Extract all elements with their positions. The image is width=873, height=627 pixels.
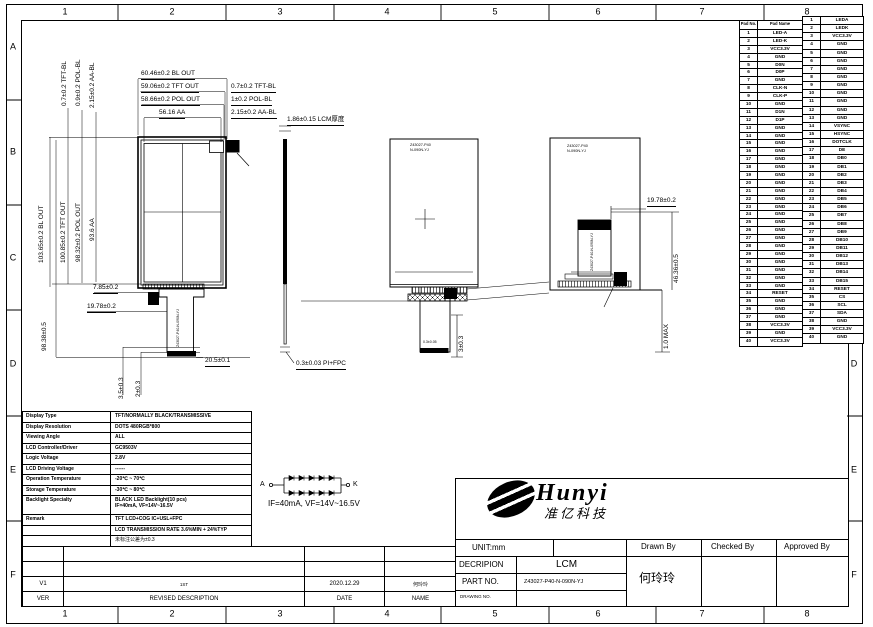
spec-value: -30℃ ~ 80℃ — [111, 486, 251, 496]
pin-name: VCC3.3V — [758, 46, 802, 53]
led-cathode-label: K — [353, 481, 358, 488]
approved-by-header: Approved By — [784, 543, 830, 551]
side-view — [279, 126, 294, 363]
pin-row: 5 GND — [803, 50, 863, 58]
pin-number: 34 — [740, 290, 758, 297]
dim-tail-offset-back: 19.78±0.2 — [647, 198, 676, 207]
pin-name: DB6 — [821, 204, 863, 211]
led-circuit-diagram — [269, 476, 349, 496]
pin-number: 14 — [740, 133, 758, 140]
drawn-by-header: Drawn By — [641, 543, 676, 551]
pin-number: 24 — [740, 211, 758, 218]
pin-name: DB8 — [821, 221, 863, 228]
pin-number: 1 — [803, 17, 821, 24]
pin-name: GND — [758, 188, 802, 195]
pin-name: GND — [821, 318, 863, 325]
pin-name: GND — [758, 330, 802, 337]
pin-row: 34 RESET — [803, 286, 863, 294]
pin-name: GND — [758, 196, 802, 203]
pin-row: 28 GND — [740, 243, 802, 251]
pin-name: GND — [821, 334, 863, 342]
spec-label: Storage Temperature — [23, 486, 111, 496]
pin-row: 25 DB7 — [803, 212, 863, 220]
dim-t-3: 3±0.3 — [459, 336, 466, 352]
pin-name: DB5 — [821, 196, 863, 203]
pin-row: 15 HSYNC — [803, 131, 863, 139]
spec-row: Display Type TFT/NORMALLY BLACK/TRANSMIS… — [23, 412, 251, 423]
pin-name: GND — [758, 251, 802, 258]
pin-number: 6 — [803, 58, 821, 65]
pin-name: GND — [758, 298, 802, 305]
spec-label: Viewing Angle — [23, 433, 111, 443]
dim-lcm-thickness: 1.86±0.15 LCM厚度 — [287, 117, 344, 126]
pin-number: 37 — [740, 314, 758, 321]
spec-value: BLACK LED Backlight(10 pcs) IF=40mA, VF=… — [111, 496, 251, 514]
spec-table: Display Type TFT/NORMALLY BLACK/TRANSMIS… — [22, 411, 252, 550]
pin-number: 15 — [803, 131, 821, 138]
dim-gap-pol-top: 0.9±0.2 POL-BL — [76, 59, 83, 106]
pin-row: 39 GND — [740, 330, 802, 338]
spec-label: Logic Voltage — [23, 454, 111, 464]
pin-number: 23 — [740, 204, 758, 211]
pin-number: 13 — [803, 115, 821, 122]
pin-row: 8 GND — [803, 74, 863, 82]
pin-name: GND — [758, 180, 802, 187]
pin-number: 11 — [803, 98, 821, 105]
spec-label: Backlight Specialty — [23, 496, 111, 514]
pin-name: GND — [821, 41, 863, 48]
revision-empty-row — [23, 547, 456, 562]
pin-number: 22 — [740, 196, 758, 203]
pin-name: LEDA — [821, 17, 863, 24]
pin-name: VSYNC — [821, 123, 863, 130]
pin-name: LED-A — [758, 30, 802, 37]
pin-row: 35 CS — [803, 294, 863, 302]
revision-name: 何玲玲 — [385, 577, 456, 591]
revision-desc-header: REVISED DESCRIPTION — [64, 592, 305, 606]
pin-row: 40 VCC3.3V — [740, 338, 802, 346]
pin-name: GND — [758, 133, 802, 140]
pin-row: 36 SCL — [803, 302, 863, 310]
pin-number: 4 — [740, 54, 758, 61]
drawing-no-label: DRAWING NO. — [460, 595, 491, 600]
pin-name: GND — [758, 77, 802, 84]
dim-h-bl: 103.65±0.2 BL OUT — [39, 205, 46, 263]
pin-number: 14 — [803, 123, 821, 130]
pin-name: GND — [758, 156, 802, 163]
spec-value: ALL — [111, 433, 251, 443]
pin-number: 7 — [803, 66, 821, 73]
pin-row: 10 GND — [803, 90, 863, 98]
pin-name: GND — [821, 50, 863, 57]
pin-name: DOTCLK — [821, 139, 863, 146]
company-logo-mark — [481, 473, 541, 524]
pin-name: GND — [821, 74, 863, 81]
company-logo-chinese: 准亿科技 — [544, 507, 608, 520]
spec-row: Remark TFT LCD+COG IC+USL+FPC — [23, 515, 251, 526]
dim-tail-offset: 19.78±0.2 — [87, 304, 116, 313]
pin-row: 29 GND — [740, 251, 802, 259]
pin-number: 36 — [803, 302, 821, 309]
pin-number: 25 — [740, 219, 758, 226]
spec-label: LCD Driving Voltage — [23, 465, 111, 475]
pin-number: 11 — [740, 109, 758, 116]
pin-number: 35 — [740, 298, 758, 305]
pin-name: DB4 — [821, 188, 863, 195]
pin-row: 35 GND — [740, 298, 802, 306]
spec-label: LCD Controller/Driver — [23, 444, 111, 454]
pin-row: 18 DB0 — [803, 155, 863, 163]
pin-number: 15 — [740, 140, 758, 147]
pin-number: 37 — [803, 310, 821, 317]
pin-number: 16 — [740, 148, 758, 155]
pin-number: 7 — [740, 77, 758, 84]
pin-name: CS — [821, 294, 863, 301]
led-anode-label: A — [260, 481, 265, 488]
pin-number: 26 — [803, 221, 821, 228]
pin-name: VCC3.3V — [821, 326, 863, 333]
pin-name: GND — [821, 115, 863, 122]
spec-row: Backlight Specialty BLACK LED Backlight(… — [23, 496, 251, 515]
pin-name: VCC3.3V — [758, 322, 802, 329]
pin-row: 7 GND — [803, 66, 863, 74]
pin-row: 38 GND — [803, 318, 863, 326]
pin-number: 19 — [740, 172, 758, 179]
pin-row: 37 GND — [740, 314, 802, 322]
pin-row: 11 D1N — [740, 109, 802, 117]
pin-number: 33 — [803, 278, 821, 285]
pin-row: 21 GND — [740, 188, 802, 196]
pin-row: 23 GND — [740, 204, 802, 212]
pin-name: DB9 — [821, 229, 863, 236]
pin-name: GND — [758, 148, 802, 155]
pin-row: 1 LED-A — [740, 30, 802, 38]
pin-name: DB3 — [821, 180, 863, 187]
pin-number: 5 — [803, 50, 821, 57]
pin-row: 3 VCC3.3V — [740, 46, 802, 54]
pin-row: 17 GND — [740, 156, 802, 164]
pin-number: 28 — [803, 237, 821, 244]
pin-row: 16 GND — [740, 148, 802, 156]
pin-number: 6 — [740, 69, 758, 76]
checked-by-header: Checked By — [711, 543, 754, 551]
pin-name: GND — [758, 164, 802, 171]
dim-h-tft: 100.85±0.2 TFT OUT — [61, 202, 68, 264]
pin-name: DB2 — [821, 172, 863, 179]
pin-name: GND — [758, 125, 802, 132]
pin-no-header: Pad No. — [740, 21, 758, 29]
pin-name: DB10 — [821, 237, 863, 244]
title-block: Hunyi 准亿科技 UNIT:mm Drawn By Checked By A… — [455, 478, 849, 607]
decription-label: DECRIPION — [459, 561, 503, 569]
pin-row: 14 GND — [740, 133, 802, 141]
back-view — [301, 139, 549, 357]
pin-number: 39 — [740, 330, 758, 337]
pin-number: 2 — [740, 38, 758, 45]
pin-row: 31 GND — [740, 267, 802, 275]
pin-name: DE — [821, 147, 863, 154]
spec-value: DOTS 480RGB*800 — [111, 423, 251, 433]
pin-number: 38 — [803, 318, 821, 325]
pin-number: 30 — [740, 259, 758, 266]
pin-name-header: Pad Name — [758, 21, 802, 29]
pin-name: GND — [821, 58, 863, 65]
panel-print-label: Z43027-P40 N-090N-YJ — [567, 144, 588, 155]
pin-row: 17 DE — [803, 147, 863, 155]
pin-number: 8 — [803, 74, 821, 81]
pin-number: 29 — [803, 245, 821, 252]
pin-number: 29 — [740, 251, 758, 258]
dim-w-tft: 59.06±0.2 TFT OUT — [141, 84, 199, 93]
pin-number: 21 — [803, 180, 821, 187]
spec-value: TFT LCD+COG IC+USL+FPC — [111, 515, 251, 525]
pin-number: 40 — [803, 334, 821, 342]
pin-row: 4 GND — [803, 41, 863, 49]
pin-row: 22 DB4 — [803, 188, 863, 196]
revision-entry-row: V1 1ST 2020.12.29 何玲玲 — [23, 577, 456, 592]
pin-number: 40 — [740, 338, 758, 346]
pin-name: D1P — [758, 117, 802, 124]
company-logo-text: Hunyi — [536, 481, 609, 505]
pin-number: 36 — [740, 306, 758, 313]
pin-name: SDA — [821, 310, 863, 317]
pin-number: 13 — [740, 125, 758, 132]
pin-number: 25 — [803, 212, 821, 219]
pin-row: 38 VCC3.3V — [740, 322, 802, 330]
pin-name: GND — [758, 219, 802, 226]
pin-row: 8 CLK-N — [740, 85, 802, 93]
pin-row: 13 GND — [803, 115, 863, 123]
revision-header-row: VER REVISED DESCRIPTION DATE NAME — [23, 592, 456, 606]
pin-number: 5 — [740, 62, 758, 69]
pin-row: 6 D0P — [740, 69, 802, 77]
pin-number: 35 — [803, 294, 821, 301]
dim-w-pol: 58.66±0.2 POL OUT — [141, 97, 200, 106]
revision-ver-header: VER — [23, 592, 64, 606]
pin-number: 9 — [740, 93, 758, 100]
pin-row: 28 DB10 — [803, 237, 863, 245]
front-view — [138, 137, 249, 357]
pin-name: HSYNC — [821, 131, 863, 138]
fpc-print-vertical: Z43027-P40-N-090N-YJ — [177, 309, 181, 347]
pin-row: 18 GND — [740, 164, 802, 172]
led-spec-text: IF=40mA, VF=14V~16.5V — [268, 500, 360, 508]
pin-number: 1 — [740, 30, 758, 37]
pin-number: 9 — [803, 82, 821, 89]
panel-print-line2: N-090N-YJ — [567, 149, 588, 154]
pin-name: DB7 — [821, 212, 863, 219]
dim-tail-tolerance: 0.3±0.05 — [423, 341, 437, 345]
pin-name: DB0 — [821, 155, 863, 162]
pin-number: 12 — [740, 117, 758, 124]
drawing-sheet: 1 2 3 4 5 6 7 8 1 2 3 4 5 6 7 8 A B C D … — [0, 0, 873, 627]
pin-name: DB11 — [821, 245, 863, 252]
pin-row: 27 DB9 — [803, 229, 863, 237]
pin-number: 4 — [803, 41, 821, 48]
spec-value: ------ — [111, 465, 251, 475]
revision-ver: V1 — [23, 577, 64, 591]
decription-value: LCM — [556, 560, 577, 570]
pin-row: 30 DB12 — [803, 253, 863, 261]
spec-value: 2.8V — [111, 454, 251, 464]
pin-row: 19 DB1 — [803, 164, 863, 172]
pin-row: 16 DOTCLK — [803, 139, 863, 147]
pin-row: 14 VSYNC — [803, 123, 863, 131]
pin-name: GND — [758, 283, 802, 290]
pin-number: 32 — [740, 275, 758, 282]
pin-row: 12 D1P — [740, 117, 802, 125]
spec-label: Remark — [23, 515, 111, 525]
pin-number: 18 — [740, 164, 758, 171]
dim-gap-tft-top: 0.7±0.2 TFT-BL — [62, 61, 69, 106]
panel-print-line2: N-090N-YJ — [410, 148, 431, 153]
pin-number: 31 — [740, 267, 758, 274]
pin-number: 8 — [740, 85, 758, 92]
spec-row: LCD Controller/Driver GC9503V — [23, 444, 251, 455]
dim-h-pol: 98.32±0.2 POL OUT — [76, 203, 83, 262]
pin-number: 12 — [803, 107, 821, 114]
pin-name: DB12 — [821, 253, 863, 260]
spec-value: -20℃ ~ 70℃ — [111, 475, 251, 485]
dim-h-module: 98.38±0.5 — [42, 322, 49, 351]
pin-number: 27 — [803, 229, 821, 236]
spec-row: Viewing Angle ALL — [23, 433, 251, 444]
pin-row: 29 DB11 — [803, 245, 863, 253]
spec-row: LCD Driving Voltage ------ — [23, 465, 251, 476]
pin-name: GND — [821, 98, 863, 105]
pin-name: GND — [758, 204, 802, 211]
spec-label: Display Resolution — [23, 423, 111, 433]
pin-name: GND — [758, 101, 802, 108]
pin-row: 37 SDA — [803, 310, 863, 318]
dim-t-35: 3.5±0.3 — [119, 377, 126, 399]
pin-table-left: Pad No. Pad Name 1 LED-A 2 LED-K 3 VCC3.… — [739, 20, 803, 347]
pin-row: 31 DB13 — [803, 261, 863, 269]
pin-name: LED-K — [758, 38, 802, 45]
pin-number: 38 — [740, 322, 758, 329]
spec-row: Logic Voltage 2.8V — [23, 454, 251, 465]
pin-rows: 1 LEDA 2 LEDK 3 VCC3.3V 4 GND — [803, 17, 863, 343]
pin-name: VCC3.3V — [821, 33, 863, 40]
pin-row: 9 CLK-P — [740, 93, 802, 101]
pin-row: 1 LEDA — [803, 17, 863, 25]
pin-number: 2 — [803, 25, 821, 32]
dim-gap-max: 1.0 MAX — [664, 324, 671, 349]
pin-row: 2 LEDK — [803, 25, 863, 33]
pin-row: 3 VCC3.3V — [803, 33, 863, 41]
spec-label — [23, 526, 111, 536]
unit-label: UNIT:mm — [472, 544, 505, 552]
pin-name: GND — [758, 275, 802, 282]
pin-name: DB13 — [821, 261, 863, 268]
dim-offset-x: 7.85±0.2 — [93, 285, 118, 294]
pin-number: 19 — [803, 164, 821, 171]
revision-name-header: NAME — [385, 592, 456, 606]
pin-number: 30 — [803, 253, 821, 260]
pin-row: 15 GND — [740, 140, 802, 148]
pin-row: 23 DB5 — [803, 196, 863, 204]
pin-number: 33 — [740, 283, 758, 290]
pin-number: 16 — [803, 139, 821, 146]
pin-row: 36 GND — [740, 306, 802, 314]
dim-w-aa: 56.16 AA — [159, 110, 185, 119]
pin-name: RESET — [758, 290, 802, 297]
pin-number: 31 — [803, 261, 821, 268]
dim-t-2: 2±0.3 — [136, 381, 143, 397]
pin-name: D1N — [758, 109, 802, 116]
pin-row: 34 RESET — [740, 290, 802, 298]
pin-row: 5 D0N — [740, 62, 802, 70]
revision-date-header: DATE — [305, 592, 385, 606]
spec-row: Display Resolution DOTS 480RGB*800 — [23, 423, 251, 434]
pin-row: 39 VCC3.3V — [803, 326, 863, 334]
pin-number: 26 — [740, 227, 758, 234]
pin-row: 2 LED-K — [740, 38, 802, 46]
pin-name: GND — [758, 54, 802, 61]
pin-name: GND — [758, 306, 802, 313]
dim-pi-fpc: 0.3±0.03 PI+FPC — [296, 361, 346, 370]
spec-value: LCD TRANSMISSION RATE 3.6%MIN + 24%TYP — [111, 526, 251, 536]
pin-row: 4 GND — [740, 54, 802, 62]
pin-row: 21 DB3 — [803, 180, 863, 188]
pin-row: 13 GND — [740, 125, 802, 133]
pin-row: 32 GND — [740, 275, 802, 283]
pin-row: 9 GND — [803, 82, 863, 90]
pin-row: 32 DB14 — [803, 269, 863, 277]
pin-row: 6 GND — [803, 58, 863, 66]
revision-desc: 1ST — [64, 577, 305, 591]
pin-row: 19 GND — [740, 172, 802, 180]
drawn-by-value: 何玲玲 — [639, 572, 675, 584]
pin-row: 26 GND — [740, 227, 802, 235]
dim-gap-aa-right: 2.15±0.2 AA-BL — [231, 110, 277, 119]
pin-table-header: Pad No. Pad Name — [740, 21, 802, 30]
pin-row: 30 GND — [740, 259, 802, 267]
pin-row: 22 GND — [740, 196, 802, 204]
pin-name: GND — [758, 267, 802, 274]
pin-number: 3 — [803, 33, 821, 40]
pin-name: GND — [758, 314, 802, 321]
dim-gap-tft-right: 0.7±0.2 TFT-BL — [231, 84, 276, 93]
pin-name: GND — [821, 90, 863, 97]
dim-gap-aa-top: 2.15±0.2 AA-BL — [90, 63, 97, 109]
pin-row: 33 GND — [740, 283, 802, 291]
spec-value: TFT/NORMALLY BLACK/TRANSMISSIVE — [111, 412, 251, 422]
pin-row: 40 GND — [803, 334, 863, 342]
pin-number: 18 — [803, 155, 821, 162]
pin-name: SCL — [821, 302, 863, 309]
pin-row: 10 GND — [740, 101, 802, 109]
pin-number: 27 — [740, 235, 758, 242]
pin-name: CLK-P — [758, 93, 802, 100]
pin-row: 26 DB8 — [803, 221, 863, 229]
pin-name: GND — [821, 66, 863, 73]
pin-name: VCC3.3V — [758, 338, 802, 346]
spec-label: Operation Temperature — [23, 475, 111, 485]
dim-fpc-length: 46.36±0.5 — [674, 254, 681, 283]
spec-value: GC9503V — [111, 444, 251, 454]
pin-name: GND — [758, 259, 802, 266]
pin-name: RESET — [821, 286, 863, 293]
pin-row: 24 GND — [740, 211, 802, 219]
pin-number: 34 — [803, 286, 821, 293]
dim-gap-pol-right: 1±0.2 POL-BL — [231, 97, 272, 106]
pin-row: 25 GND — [740, 219, 802, 227]
pin-name: CLK-N — [758, 85, 802, 92]
pin-row: 27 GND — [740, 235, 802, 243]
pin-number: 28 — [740, 243, 758, 250]
pin-number: 17 — [740, 156, 758, 163]
